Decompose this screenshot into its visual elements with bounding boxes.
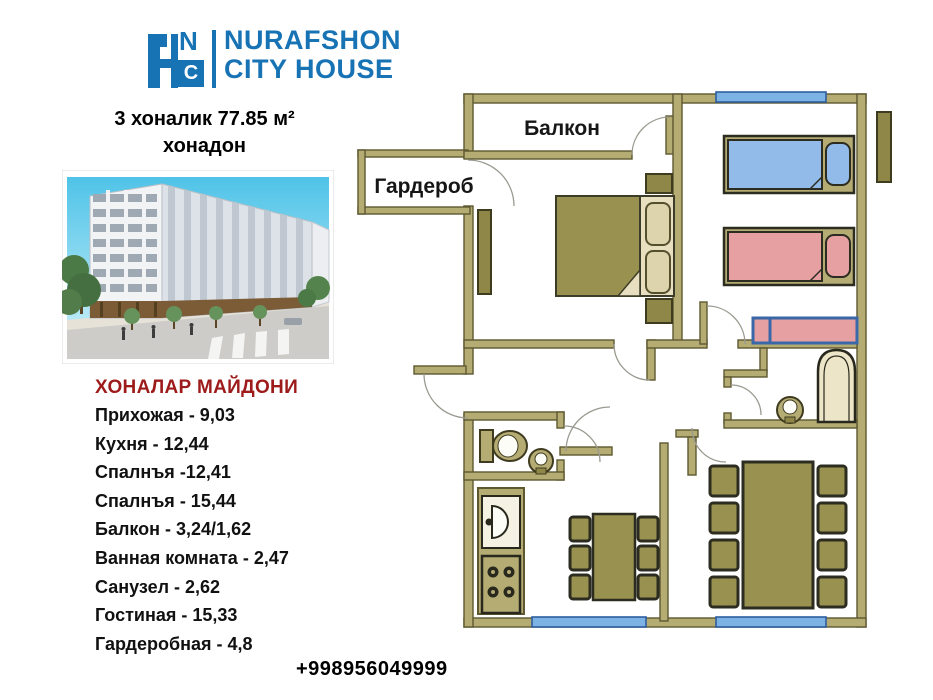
- door-arc-bedroom2: [707, 306, 745, 344]
- logo-icon: N C: [146, 26, 208, 90]
- kitchen-sink: [482, 496, 520, 548]
- door-arc-wardrobe: [468, 160, 514, 206]
- area-item-wardrobe: Гардеробная - 4,8: [95, 630, 385, 659]
- logo-h-stem-right: [171, 34, 178, 88]
- balcony-label: Балкон: [524, 117, 600, 140]
- door-arc-bathroom: [731, 385, 761, 415]
- door-arc-wc: [564, 426, 600, 462]
- bathroom-sink: [777, 397, 803, 423]
- title-line1: 3 хоналик 77.85 м²: [77, 106, 332, 133]
- area-item-bathroom: Ванная комната - 2,47: [95, 544, 385, 573]
- logo-h-cap: [148, 34, 167, 47]
- door-arc-kitchen: [566, 407, 610, 451]
- logo-wordmark: NURAFSHON CITY HOUSE: [224, 26, 401, 84]
- logo-h-crossbar: [159, 59, 171, 68]
- door-arc-balcony: [632, 117, 670, 155]
- area-item-living: Гостиная - 15,33: [95, 601, 385, 630]
- area-item-kitchen: Кухня - 12,44: [95, 430, 385, 459]
- area-item-bedroom2: Спалнъя - 15,44: [95, 487, 385, 516]
- page-title: 3 хоналик 77.85 м² хонадон: [77, 106, 332, 160]
- logo-letter-n: N: [179, 28, 198, 54]
- dining-table-kitchen: [570, 514, 658, 600]
- area-item-hallway: Прихожая - 9,03: [95, 401, 385, 430]
- room-areas: ХОНАЛАР МАЙДОНИ Прихожая - 9,03 Кухня - …: [95, 374, 385, 658]
- window-kitchen: [532, 617, 646, 627]
- toilet: [480, 430, 527, 462]
- logo-letter-c: C: [178, 60, 204, 87]
- area-item-wc: Санузел - 2,62: [95, 573, 385, 602]
- dining-table-living: [710, 462, 846, 608]
- room-areas-heading: ХОНАЛАР МАЙДОНИ: [95, 374, 385, 401]
- logo-wordmark-line1: NURAFSHON: [224, 26, 401, 55]
- door-arc-bedroom1: [614, 344, 650, 380]
- nightstand: [646, 174, 672, 193]
- stove: [482, 556, 520, 613]
- phone-number: +998956049999: [296, 658, 448, 681]
- title-line2: хонадон: [77, 133, 332, 160]
- pillow: [826, 235, 850, 277]
- single-bed-pink: [724, 228, 854, 285]
- building-rendering: [62, 170, 334, 364]
- bench-desk: [753, 318, 857, 343]
- floor-plan: Балкон Гардероб: [350, 80, 910, 640]
- area-item-balcony: Балкон - 3,24/1,62: [95, 515, 385, 544]
- door-arc-entry: [424, 374, 468, 418]
- pillow: [826, 143, 850, 185]
- pillow: [646, 251, 670, 293]
- window-living: [716, 617, 826, 627]
- nightstand: [646, 299, 672, 323]
- window-top: [716, 92, 826, 102]
- car: [284, 318, 302, 325]
- double-bed: [556, 196, 674, 296]
- cabinet: [478, 210, 491, 294]
- single-bed-blue: [724, 136, 854, 193]
- area-item-bedroom1: Спалнъя -12,41: [95, 458, 385, 487]
- pillow: [646, 203, 670, 245]
- logo-separator: [212, 30, 216, 88]
- wc-sink: [529, 449, 553, 474]
- wardrobe-label: Гардероб: [374, 175, 473, 198]
- flyer: N C NURAFSHON CITY HOUSE 3 хоналик 77.85…: [0, 0, 933, 700]
- bathtub: [818, 350, 855, 422]
